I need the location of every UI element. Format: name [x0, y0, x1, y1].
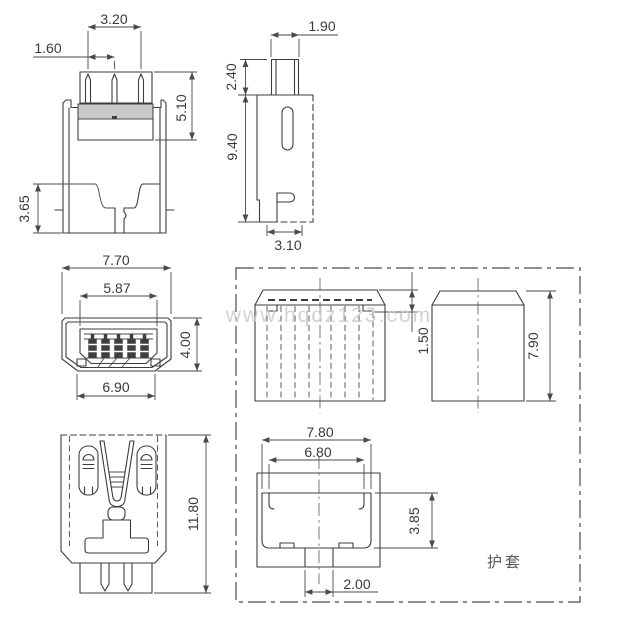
- watermark-text: www.hqdz123.com: [225, 304, 432, 327]
- view-sheath-front: 7.80 6.80 3.85 2.00: [257, 424, 438, 597]
- dim-label-total-length: 11.80: [185, 497, 201, 531]
- dim-label-front-height: 4.00: [177, 331, 193, 358]
- dim-label-outer-width: 7.70: [102, 252, 129, 268]
- sheath-side-dimensions: 7.90: [525, 291, 556, 401]
- sheath-front-dimensions: 7.80 6.80 3.85 2.00: [262, 424, 438, 597]
- plug-front-pins: [89, 334, 149, 358]
- dim-label-foot-width: 3.10: [274, 237, 301, 253]
- dim-label-sheath-inner-width: 6.80: [304, 444, 331, 460]
- sheath-top-outline: [255, 278, 385, 413]
- sheath-side-outline: [432, 278, 524, 413]
- dim-label-body-height: 9.40: [224, 133, 240, 160]
- dim-label-sheath-width: 7.90: [525, 332, 541, 359]
- plug-top-outline: [61, 435, 166, 593]
- plug-front-dimensions: 7.70 5.87 4.00 6.90: [62, 252, 202, 400]
- view-sheath-top: 1.50: [255, 272, 431, 413]
- dim-label-pin-pitch: 1.60: [34, 40, 61, 56]
- plug-top-dimensions: 11.80: [154, 435, 211, 593]
- dim-label-lip-depth: 1.50: [415, 327, 431, 354]
- plug-front-outline: [62, 318, 171, 371]
- drawing-canvas: 3.20 1.60 5.10 3.65: [0, 0, 639, 633]
- dim-label-pin-row-width: 3.20: [100, 11, 127, 27]
- dim-label-tab-width: 1.90: [308, 18, 335, 34]
- dim-label-shell-depth: 5.10: [173, 94, 189, 121]
- view-plug-front: 7.70 5.87 4.00 6.90: [62, 252, 202, 400]
- dim-label-cavity-height: 3.85: [406, 507, 422, 534]
- dim-label-latch-offset: 3.65: [16, 195, 32, 222]
- dim-label-sheath-outer-width: 7.80: [306, 424, 333, 440]
- dim-label-opening-width: 5.87: [103, 280, 130, 296]
- engineering-drawing-page: 3.20 1.60 5.10 3.65: [0, 0, 639, 633]
- view-plug-rear: 3.20 1.60 5.10 3.65: [16, 11, 197, 233]
- plug-side-dimensions: 1.90 2.40 9.40 3.10: [223, 18, 338, 253]
- view-plug-top: 11.80: [61, 435, 211, 593]
- plug-rear-dimensions: 3.20 1.60 5.10 3.65: [16, 11, 197, 233]
- view-sheath-side: 7.90: [432, 278, 556, 413]
- dim-label-tab-height: 2.40: [223, 63, 239, 90]
- plug-rear-outline: [33, 72, 174, 233]
- dim-label-slot-width: 2.00: [343, 576, 370, 592]
- dim-label-bottom-width: 6.90: [102, 379, 129, 395]
- sheath-section-label: 护套: [487, 554, 523, 571]
- view-plug-side: 1.90 2.40 9.40 3.10: [223, 18, 338, 253]
- plug-side-outline: [257, 60, 313, 223]
- sheath-front-outline: [257, 456, 380, 584]
